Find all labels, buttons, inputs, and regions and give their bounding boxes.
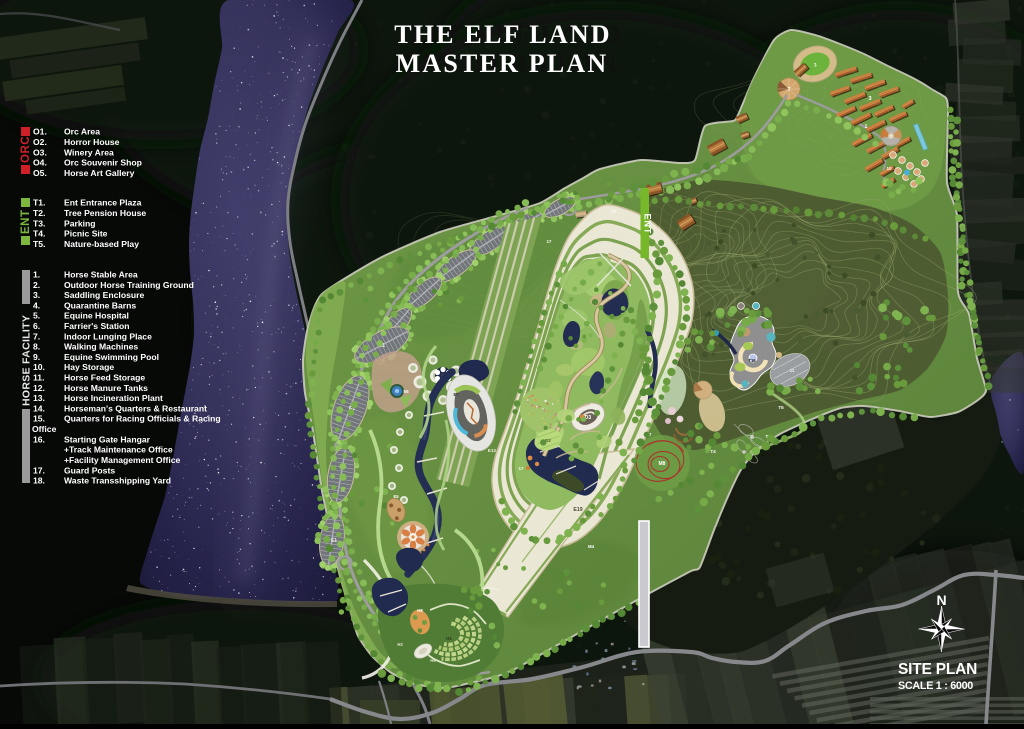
svg-text:H9: H9 xyxy=(430,658,436,663)
svg-text:+Track Maintenance Office: +Track Maintenance Office xyxy=(64,445,173,455)
svg-text:5.: 5. xyxy=(33,311,40,321)
svg-text:9.: 9. xyxy=(33,352,40,362)
svg-text:7: 7 xyxy=(890,134,893,139)
svg-text:O4.: O4. xyxy=(33,158,47,168)
svg-text:14.: 14. xyxy=(33,403,45,413)
svg-text:Horse Art Gallery: Horse Art Gallery xyxy=(64,168,135,178)
svg-text:Farrier's Station: Farrier's Station xyxy=(64,321,130,331)
svg-text:SCALE 1 : 6000: SCALE 1 : 6000 xyxy=(898,680,973,692)
svg-text:3: 3 xyxy=(868,96,871,102)
svg-text:Quarantine Barns: Quarantine Barns xyxy=(64,300,136,310)
svg-text:T4.: T4. xyxy=(33,229,45,239)
svg-text:13.: 13. xyxy=(33,393,45,403)
svg-text:17: 17 xyxy=(519,466,524,471)
svg-text:O1.: O1. xyxy=(33,127,47,137)
svg-text:T5: T5 xyxy=(778,405,784,410)
svg-text:12.: 12. xyxy=(33,383,45,393)
svg-text:1.: 1. xyxy=(33,270,40,280)
svg-text:+Facility Management Office: +Facility Management Office xyxy=(64,455,181,465)
svg-text:Parking: Parking xyxy=(64,218,96,228)
svg-text:16.: 16. xyxy=(33,434,45,444)
svg-text:E19: E19 xyxy=(573,507,582,513)
svg-text:H3: H3 xyxy=(397,642,403,647)
svg-text:Quarters for Racing Officials: Quarters for Racing Officials & Racing xyxy=(64,414,221,424)
svg-text:E5: E5 xyxy=(393,494,399,499)
svg-text:4.: 4. xyxy=(33,300,40,310)
svg-text:T5.: T5. xyxy=(33,239,45,249)
svg-text:THE ELF LAND: THE ELF LAND xyxy=(394,20,612,49)
svg-text:O5.: O5. xyxy=(33,168,47,178)
svg-text:E12: E12 xyxy=(488,448,497,453)
svg-text:Picnic Site: Picnic Site xyxy=(64,229,108,239)
svg-text:T16: T16 xyxy=(748,358,756,363)
svg-text:E7: E7 xyxy=(453,392,459,397)
svg-text:ENT: ENT xyxy=(643,214,653,235)
svg-text:Hay Storage: Hay Storage xyxy=(64,362,114,372)
svg-text:SITE PLAN: SITE PLAN xyxy=(898,661,977,678)
svg-text:E1: E1 xyxy=(331,538,337,544)
svg-text:O2.: O2. xyxy=(33,137,47,147)
svg-text:Ent Entrance Plaza: Ent Entrance Plaza xyxy=(64,198,142,208)
svg-text:2.: 2. xyxy=(33,280,40,290)
svg-text:10.: 10. xyxy=(33,362,45,372)
svg-text:T2.: T2. xyxy=(33,208,45,218)
svg-text:3.: 3. xyxy=(33,290,40,300)
svg-text:Equine Swimming Pool: Equine Swimming Pool xyxy=(64,352,159,362)
svg-text:Guard Posts: Guard Posts xyxy=(64,465,115,475)
svg-text:M8: M8 xyxy=(659,461,666,467)
svg-text:Saddling Enclosure: Saddling Enclosure xyxy=(64,290,144,300)
svg-text:8.: 8. xyxy=(33,342,40,352)
svg-text:6.: 6. xyxy=(33,321,40,331)
svg-text:Tree Pension House: Tree Pension House xyxy=(64,208,146,218)
svg-text:1: 1 xyxy=(865,124,868,130)
svg-text:7.: 7. xyxy=(33,331,40,341)
svg-text:10: 10 xyxy=(886,166,892,171)
svg-text:Horse Manure Tanks: Horse Manure Tanks xyxy=(64,383,148,393)
svg-text:Horseman's Quarters & Restaura: Horseman's Quarters & Restaurant xyxy=(64,403,207,413)
svg-text:Horse Feed Storage: Horse Feed Storage xyxy=(64,373,145,383)
svg-text:T3.: T3. xyxy=(33,218,45,228)
svg-text:N: N xyxy=(936,592,946,608)
svg-text:Winery Area: Winery Area xyxy=(64,147,114,157)
svg-text:7: 7 xyxy=(788,87,791,93)
svg-text:11: 11 xyxy=(790,368,795,373)
svg-text:Nature-based Play: Nature-based Play xyxy=(64,239,139,249)
svg-text:17: 17 xyxy=(547,239,552,244)
svg-text:T1.: T1. xyxy=(33,198,45,208)
svg-text:Outdoor Horse Training Ground: Outdoor Horse Training Ground xyxy=(64,280,194,290)
svg-text:Waste Transshipping Yard: Waste Transshipping Yard xyxy=(64,476,171,486)
svg-text:Orc Souvenir Shop: Orc Souvenir Shop xyxy=(64,158,142,168)
svg-text:M4: M4 xyxy=(588,544,595,549)
svg-text:Indoor Lunging Place: Indoor Lunging Place xyxy=(64,331,152,341)
svg-text:18.: 18. xyxy=(33,476,45,486)
svg-text:O3.: O3. xyxy=(33,147,47,157)
svg-text:15.: 15. xyxy=(33,414,45,424)
svg-text:17.: 17. xyxy=(33,465,45,475)
svg-text:Horror House: Horror House xyxy=(64,137,120,147)
svg-text:Office: Office xyxy=(32,424,57,434)
svg-text:Walking Machines: Walking Machines xyxy=(64,342,138,352)
svg-text:Orc Area: Orc Area xyxy=(64,127,100,137)
svg-text:E6: E6 xyxy=(403,389,409,394)
svg-text:H1: H1 xyxy=(446,636,452,641)
svg-text:ENT: ENT xyxy=(20,210,32,235)
svg-text:Equine Hospital: Equine Hospital xyxy=(64,311,129,321)
svg-text:ORC: ORC xyxy=(20,136,32,163)
svg-text:H8: H8 xyxy=(417,608,423,613)
svg-text:HORSE FACILITY: HORSE FACILITY xyxy=(21,315,33,406)
svg-text:Starting Gate Hangar: Starting Gate Hangar xyxy=(64,434,151,444)
svg-text:17: 17 xyxy=(612,209,617,214)
svg-text:Horse Incineration Plant: Horse Incineration Plant xyxy=(64,393,163,403)
svg-text:T4: T4 xyxy=(710,449,716,454)
svg-text:MASTER PLAN: MASTER PLAN xyxy=(396,49,609,78)
svg-text:11.: 11. xyxy=(33,373,44,383)
svg-text:Horse Stable Area: Horse Stable Area xyxy=(64,270,138,280)
